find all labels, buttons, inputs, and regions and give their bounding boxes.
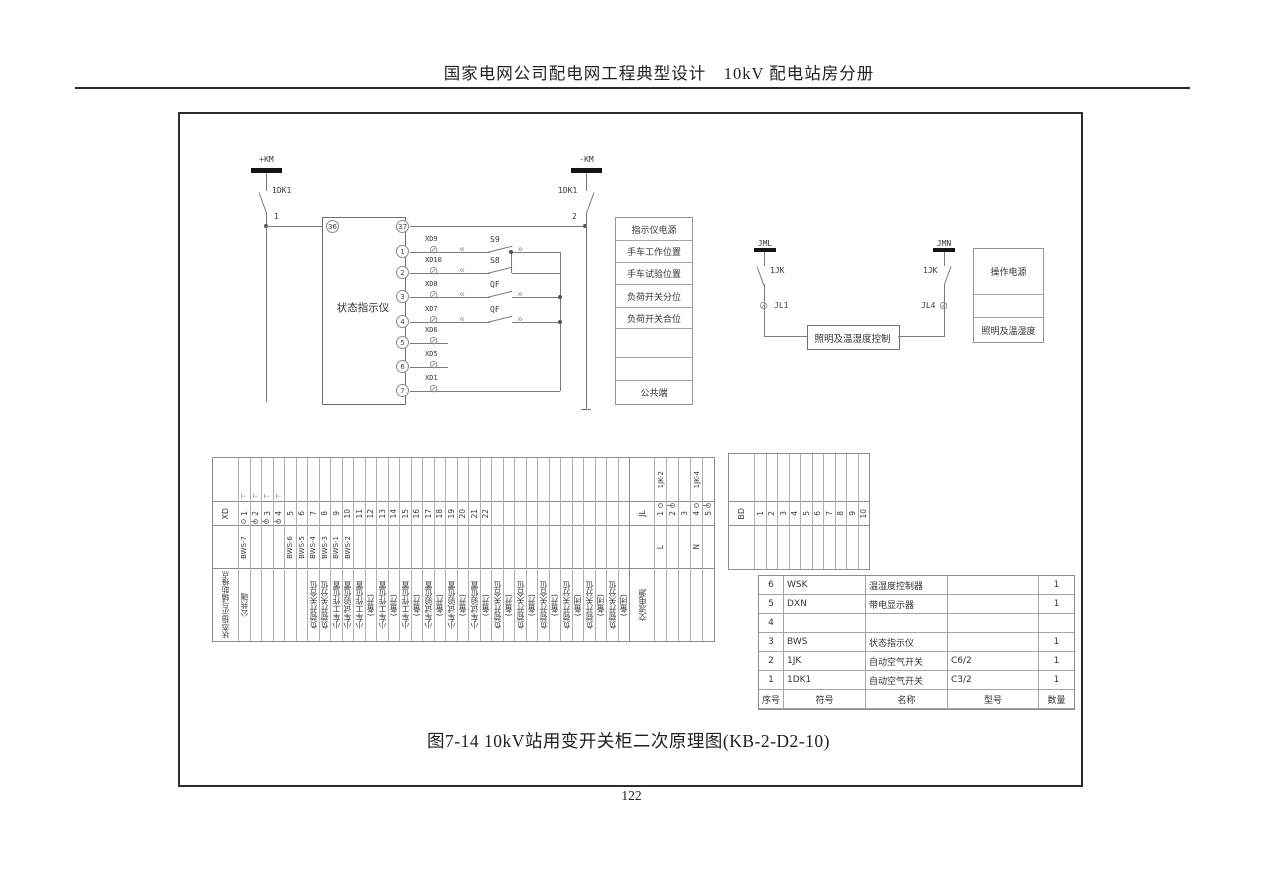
strip-band [389,526,400,569]
strip-band: 负荷开关合位 [308,569,319,641]
jumper-link-line [262,521,267,522]
strip-band [596,458,607,501]
terminal-function-label: (备开) [526,594,537,616]
equipment-cell: DXN [784,595,866,614]
equipment-cell: 4 [759,614,784,633]
strip-band [561,526,572,569]
terminal-function-label: (备闭) [595,594,606,616]
strip-band: 1JK-4 [691,458,702,501]
strip-band: 负荷开关合位 [538,569,549,641]
strip-band [331,458,342,501]
terminal-column: 负荷开关分位 [606,458,618,641]
wire-number-1: 1 [274,212,279,221]
equipment-table: 6WSK温湿度控制器15DXN带电显示器143BWS状态指示仪121JK自动空气… [758,575,1075,710]
terminal-number: 7 [825,511,834,516]
strip-band [527,526,538,569]
strip-band: (备开) [481,569,492,641]
bus-plus-km-label: +KM [251,155,282,164]
terminal-function-label: 小车工作位置 [377,581,388,629]
equipment-header-cell: 型号 [948,690,1039,709]
strip-band: XD [213,501,238,526]
terminal-number: 2 [767,511,776,516]
strip-band [813,454,824,501]
terminal-icon: ⊘ [429,359,438,370]
terminal-number: 6 [297,511,306,516]
strip-band: (备闭) [573,569,584,641]
strip-band: 3 [679,501,690,526]
strip-band [343,458,354,501]
strip-band: ⊥ [251,458,262,501]
terminal-function-label: (备开) [503,594,514,616]
equipment-cell: 带电显示器 [866,595,948,614]
terminal-function-label: (备开) [480,594,491,616]
terminal-icon: ⊘ [429,335,438,346]
strip-band: 负荷开关分位 [320,569,331,641]
equipment-cell [784,614,866,633]
terminal-number: 8 [836,511,845,516]
terminal-icon: ⊘ [759,300,768,311]
wire-code-label: BWS-5 [298,536,306,559]
signal-row-label: 负荷开关分位 [616,285,692,308]
strip-band: 3 [778,501,789,526]
strip-band [801,454,812,501]
terminal-column: 10 [858,454,870,569]
terminal-function-label: 负荷开关分位 [607,581,618,629]
strip-id-label: BD [737,508,746,520]
strip-band: BWS-7 [239,526,250,569]
strip-band [213,458,238,501]
equipment-cell: 1 [1039,671,1074,690]
terminal-number: 5 [802,511,811,516]
terminal-column: 15小车工作位置 [399,458,411,641]
terminal-number: 1 [240,511,249,516]
terminal-column: 5 [800,454,812,569]
strip-band [213,526,238,569]
strip-band [400,526,411,569]
strip-band [320,458,331,501]
wire-line [898,336,944,337]
plug-chevron-icon: « [459,315,465,325]
terminal-column: 6 [812,454,824,569]
equipment-cell [948,614,1039,633]
wire-line [944,252,945,266]
terminal-circle: 6 [396,360,409,373]
junction-dot [509,250,513,254]
strip-band [767,454,778,501]
strip-band [813,526,824,569]
strip-band: 21 [469,501,480,526]
equipment-header-cell: 名称 [866,690,948,709]
terminal-column: (备开) [503,458,515,641]
terminal-number: 4 [692,511,701,516]
strip-band [274,526,285,569]
signal-row-label: 指示仪电源 [616,218,692,241]
strip-band [596,501,607,526]
wire-line [764,336,807,337]
terminal-number: 2 [668,511,677,516]
strip-band: 3 [262,501,273,526]
terminal-column: 21小车试验位置 [468,458,480,641]
terminal-function-label: 小车试验位置 [446,581,457,629]
strip-band: 负荷开关分位 [607,569,618,641]
signal-row-label: 公共端 [616,381,692,404]
terminal-function-label: (备闭) [618,594,629,616]
equipment-cell [948,633,1039,652]
plug-chevron-icon: » [517,290,523,300]
bus-jmn-bar [933,248,955,252]
strip-band: 负荷开关合位 [515,569,526,641]
terminal-number: 9 [848,511,857,516]
wire-line [266,213,267,402]
strip-band: 13 [377,501,388,526]
strip-band: 18 [435,501,446,526]
terminal-number: 4 [274,511,283,516]
terminal-column: ⊥3 [261,458,273,641]
strip-band [573,501,584,526]
terminal-circle-37: 37 [396,220,409,233]
wire-line [266,173,267,191]
strip-band: 7 [308,501,319,526]
wire-line [410,297,490,298]
strip-band [755,526,766,569]
equipment-header-cell: 符号 [784,690,866,709]
xd-terminal-label: XD9 [425,235,451,243]
terminal-column: 22(备开) [480,458,492,641]
terminal-circle: 7 [396,384,409,397]
terminal-column: (备闭) [572,458,584,641]
strip-band [847,454,858,501]
strip-band [619,526,630,569]
terminal-column: 负荷开关合位 [537,458,549,641]
strip-band [573,458,584,501]
strip-band [354,526,365,569]
terminal-number: 12 [366,509,375,519]
strip-band: (备闭) [619,569,630,641]
terminal-number: 8 [320,511,329,516]
strip-band [630,526,654,569]
wire-code-label: BWS-7 [240,536,248,559]
terminal-number: 20 [458,509,467,519]
strip-band [679,458,690,501]
terminal-column: 6BWS-5 [296,458,308,641]
strip-band [538,501,549,526]
plug-chevron-icon: « [459,266,465,276]
strip-band [667,526,678,569]
jumper-circle-icon [658,503,663,508]
strip-band: 小车试验位置 [446,569,457,641]
xd-terminal-label: XD5 [425,350,451,358]
strip-band: 17 [423,501,434,526]
equipment-cell: 1 [1039,652,1074,671]
strip-band [550,458,561,501]
terminal-function-label: (备闭) [572,594,583,616]
wire-code-label: N [692,544,701,550]
terminal-column: 17小车试验位置 [422,458,434,641]
strip-band: BWS-4 [308,526,319,569]
strip-band: 8 [320,501,331,526]
strip-band [691,569,702,641]
strip-band [377,526,388,569]
terminal-function-label: (备开) [388,594,399,616]
wire-number-2: 2 [572,212,577,221]
xd-terminal-label: XD1 [425,374,451,382]
terminal-number: 18 [435,509,444,519]
terminal-number: 11 [355,509,364,519]
terminal-column: 4 [789,454,801,569]
status-indicator-label: 状态指示仪 [322,300,404,315]
jumper-link-line [274,521,279,522]
terminal-column: 10BWS-2小车试验位置 [342,458,354,641]
xd-terminal-label: XD10 [425,256,451,264]
terminal-column: (备闭) [618,458,630,641]
terminal-number: 3 [680,511,689,516]
xd-terminal-label: XD7 [425,305,451,313]
terminal-circle: 1 [396,245,409,258]
strip-band: 小车工作位置 [377,569,388,641]
jumper-link-line [667,505,673,506]
strip-band: ⊥ [239,458,250,501]
strip-band [847,526,858,569]
strip-id-label: JL [638,510,647,517]
strip-band: 19 [446,501,457,526]
bus-jml-bar [754,248,776,252]
strip-band: 1JK-2 [655,458,666,501]
wire-line [764,252,765,266]
junction-dot [558,295,562,299]
terminal-column: 18(备开) [434,458,446,641]
terminal-function-label: 小车工作位置 [400,581,411,629]
strip-band [596,526,607,569]
strip-band: 10 [859,501,870,526]
strip-band: BWS-2 [343,526,354,569]
strip-band [262,569,273,641]
equipment-cell [948,576,1039,595]
terminal-number: 13 [378,509,387,519]
strip-band [607,458,618,501]
breaker-1dk1-right-label: 1DK1 [558,186,577,195]
strip-band: 2 [251,501,262,526]
terminal-icon: ⊘ [429,314,438,325]
strip-band [504,458,515,501]
strip-band: 6 [297,501,308,526]
terminal-function-label: (备开) [549,594,560,616]
terminal-column: 7BWS-4负荷开关合位 [307,458,319,641]
strip-band [366,458,377,501]
strip-band [824,454,835,501]
terminal-number: 16 [412,509,421,519]
strip-band: 5 [285,501,296,526]
equipment-cell: 自动空气开关 [866,652,948,671]
terminal-function-label: 小车工作位置 [354,581,365,629]
terminal-column: 负荷开关合位 [491,458,503,641]
terminal-circle: 2 [396,266,409,279]
terminal-number: 5 [704,511,713,516]
wire-end-tick [581,409,591,410]
wire-line [410,273,490,274]
xd-terminal-strip: XD状态指示与辅助接点⊥1BWS-7公共端⊥2⊥3⊥45BWS-66BWS-57… [212,457,630,642]
terminal-function-label: 小车试验位置 [423,581,434,629]
strip-band [366,526,377,569]
bus-minus-km-label: -KM [571,155,602,164]
strip-band: (备开) [366,569,377,641]
terminal-number: 2 [251,511,260,516]
strip-band: 5 [801,501,812,526]
strip-band [538,526,549,569]
strip-band: 11 [354,501,365,526]
terminal-function-label: 负荷开关分位 [561,581,572,629]
strip-band: 小车试验位置 [469,569,480,641]
wire-code-label: BWS-1 [332,536,340,559]
terminal-function-label: (备开) [457,594,468,616]
strip-band [446,526,457,569]
terminal-function-label: 负荷开关分位 [319,581,330,629]
wire-code-label: L [656,545,665,549]
strip-band [377,458,388,501]
equipment-cell: C3/2 [948,671,1039,690]
strip-band [481,458,492,501]
terminal-column: 11小车工作位置 [353,458,365,641]
strip-band [550,501,561,526]
terminal-column: 5BWS-6 [284,458,296,641]
page-number: 122 [0,788,1263,804]
strip-band: 14 [389,501,400,526]
terminal-column: 1JK-21L [654,458,666,641]
terminal-number: 3 [263,511,272,516]
strip-band: ⊥ [274,458,285,501]
strip-band: 9 [331,501,342,526]
terminal-column: ⊥2 [250,458,262,641]
xd-terminal-label: XD8 [425,280,451,288]
terminal-number: 1 [656,511,665,516]
strip-id-label: XD [221,508,230,520]
bd-terminal-strip: BD12345678910 [728,453,870,570]
terminal-column: 13小车工作位置 [376,458,388,641]
strip-band: 16 [412,501,423,526]
terminal-column: 5 [702,458,714,641]
strip-band [836,454,847,501]
strip-band [584,501,595,526]
terminal-column: (备开) [526,458,538,641]
lighting-control-label: 照明及温湿度控制 [807,331,898,345]
strip-band [274,569,285,641]
terminal-number: 19 [447,509,456,519]
xd-terminal-label: XD6 [425,326,451,334]
strip-band: (备开) [389,569,400,641]
strip-band [527,458,538,501]
terminal-icon: ⊘ [429,383,438,394]
equipment-cell: 3 [759,633,784,652]
strip-band: 小车工作位置 [331,569,342,641]
strip-band: 4 [790,501,801,526]
strip-band [251,526,262,569]
strip-band [527,501,538,526]
equipment-cell: 5 [759,595,784,614]
strip-band [251,569,262,641]
switch-label: QF [490,280,500,289]
jumper-link-line [251,521,256,522]
strip-band [679,526,690,569]
equipment-cell: 1 [1039,576,1074,595]
strip-band [285,569,296,641]
equipment-cell: BWS [784,633,866,652]
strip-band [655,569,666,641]
wire-line [512,273,560,274]
strip-band: 4 [274,501,285,526]
terminal-column: 2 [766,454,778,569]
equipment-cell: 1 [759,671,784,690]
strip-band [469,526,480,569]
terminal-column: 19小车试验位置 [445,458,457,641]
strip-band [584,458,595,501]
strip-band [859,454,870,501]
strip-band [458,526,469,569]
strip-band: 小车工作位置 [400,569,411,641]
terminal-circle-36: 36 [326,220,339,233]
terminal-number: 5 [286,511,295,516]
equipment-cell: 状态指示仪 [866,633,948,652]
equipment-cell: 2 [759,652,784,671]
equipment-cell: 1DK1 [784,671,866,690]
strip-band: 1 [239,501,250,526]
jumper-mark-icon: ⊥ [262,493,270,499]
terminal-number: 3 [779,511,788,516]
header-rule [75,87,1190,89]
terminal-column: 负荷开关合位 [514,458,526,641]
bus-jml-label: JML [754,239,776,248]
wire-line [586,213,587,410]
equipment-cell [866,614,948,633]
jumper-mark-icon: ⊥ [239,493,247,499]
terminal-function-label: 小车试验位置 [342,581,353,629]
strip-band [607,501,618,526]
strip-band [515,526,526,569]
wire-line [410,252,490,253]
strip-band: 公共端 [239,569,250,641]
strip-band: 交流电源 [630,569,654,641]
strip-band: BWS-1 [331,526,342,569]
strip-band [607,526,618,569]
strip-band: 小车工作位置 [354,569,365,641]
strip-band [492,501,503,526]
terminal-column: 20(备开) [457,458,469,641]
equipment-cell: WSK [784,576,866,595]
jumper-circle-icon [241,519,246,524]
legend-row-label [974,295,1043,318]
terminal-column: 9 [846,454,858,569]
terminal-number: 7 [309,511,318,516]
wire-line [410,226,586,227]
terminal-function-label: 小车工作位置 [331,581,342,629]
wire-code-label: 1JK-4 [693,471,701,488]
strip-band [354,458,365,501]
strip-header-column: JL交流电源 [630,458,654,641]
plug-chevron-icon: « [459,245,465,255]
terminal-function-label: 负荷开关合位 [308,581,319,629]
strip-group-label: 状态指示与辅助接点 [220,571,231,639]
strip-band [492,526,503,569]
terminal-circle: 5 [396,336,409,349]
terminal-function-label: (备开) [411,594,422,616]
strip-band: 7 [824,501,835,526]
bus-jmn-label: JMN [933,239,955,248]
strip-band [400,458,411,501]
strip-band [515,458,526,501]
wire-line [944,284,945,337]
terminal-number: 14 [389,509,398,519]
strip-band: BD [729,501,754,526]
terminal-jl4-label: JL4 [921,301,935,310]
strip-band [504,501,515,526]
